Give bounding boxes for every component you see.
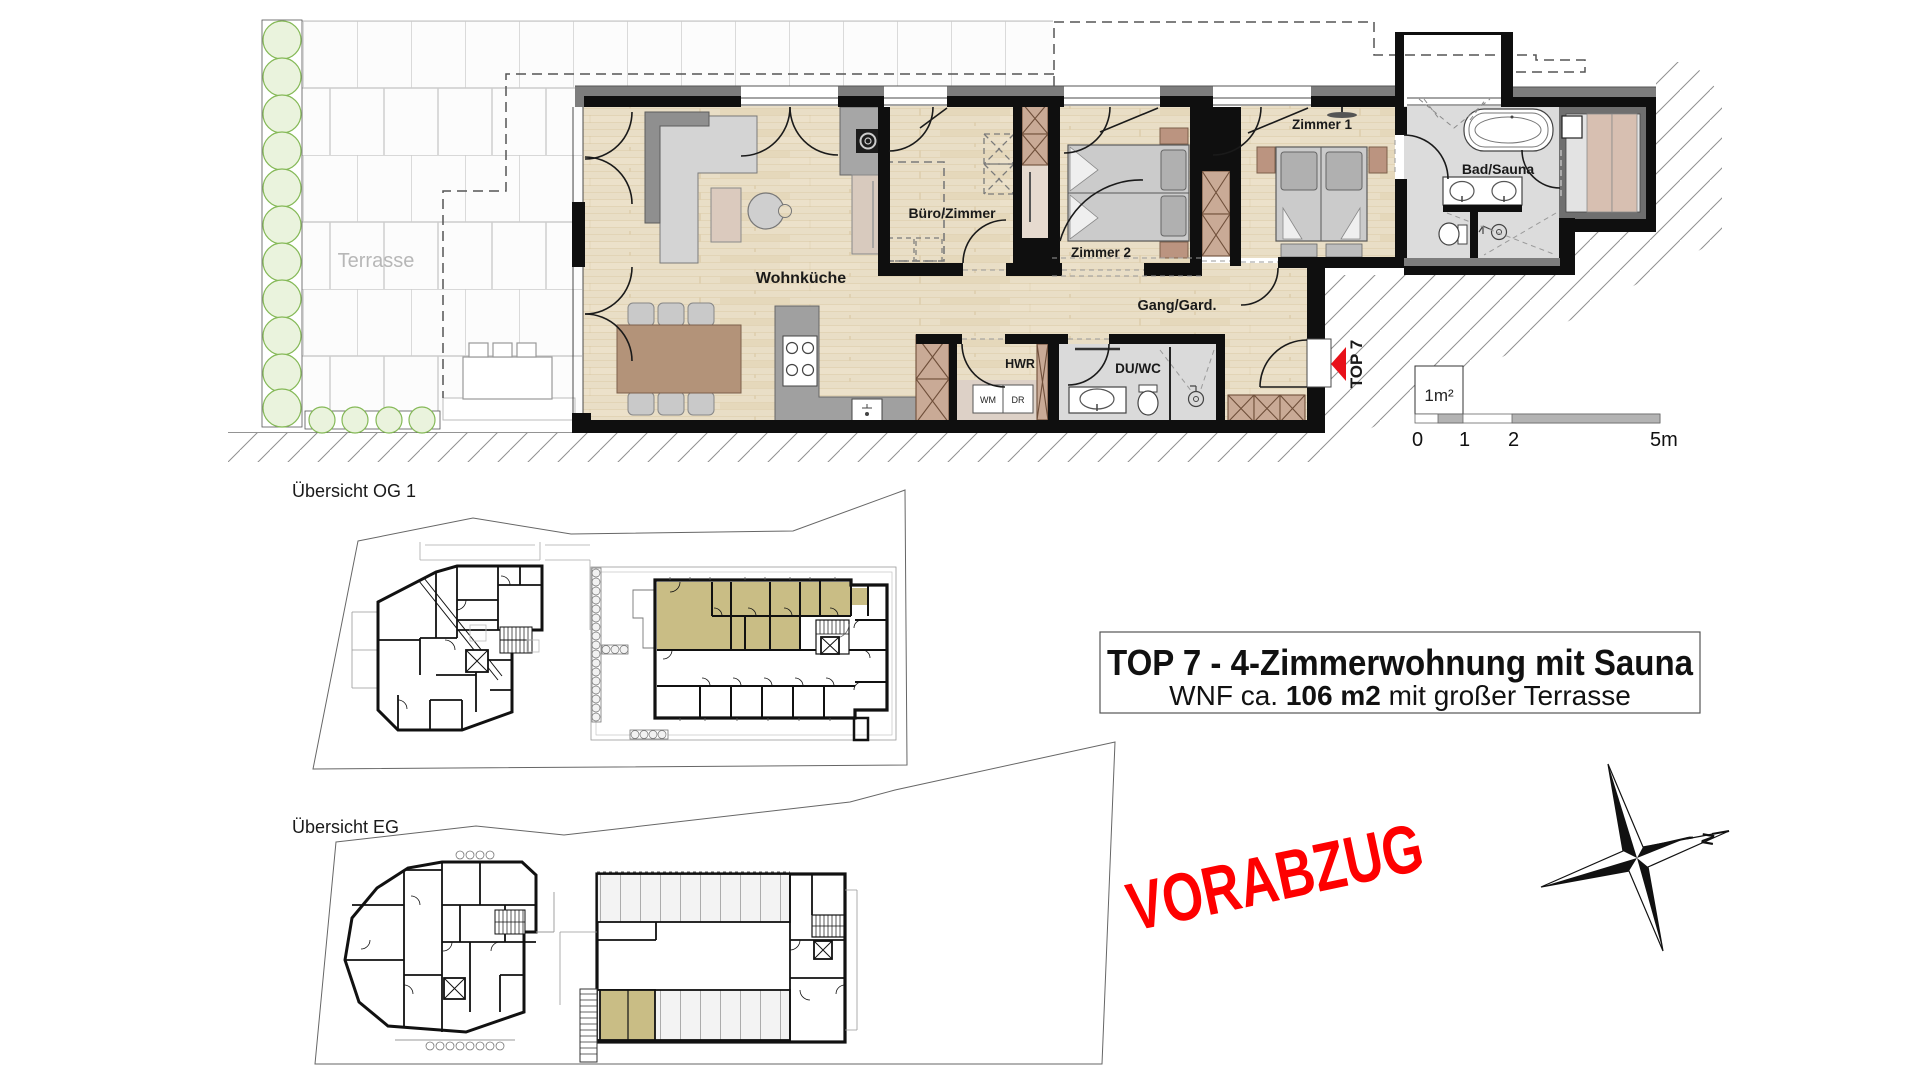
svg-text:DU/WC: DU/WC <box>1115 361 1161 376</box>
svg-text:WNF ca. 106 m2 mit großer Terr: WNF ca. 106 m2 mit großer Terrasse <box>1169 680 1631 711</box>
svg-text:Übersicht EG: Übersicht EG <box>292 817 399 837</box>
svg-text:2: 2 <box>1508 429 1519 451</box>
svg-text:Wohnküche: Wohnküche <box>756 270 846 287</box>
svg-text:Zimmer 2: Zimmer 2 <box>1071 245 1131 260</box>
svg-text:Terrasse: Terrasse <box>338 250 415 272</box>
svg-text:TOP 7: TOP 7 <box>1347 340 1366 389</box>
svg-text:HWR: HWR <box>1005 357 1035 371</box>
svg-text:DR: DR <box>1012 395 1025 405</box>
svg-text:Übersicht OG 1: Übersicht OG 1 <box>292 481 416 501</box>
svg-text:Bad/Sauna: Bad/Sauna <box>1462 161 1535 177</box>
svg-text:5m: 5m <box>1650 429 1678 451</box>
svg-text:Gang/Gard.: Gang/Gard. <box>1138 298 1217 314</box>
svg-text:TOP 7 - 4-Zimmerwohnung mit Sa: TOP 7 - 4-Zimmerwohnung mit Sauna <box>1107 642 1694 683</box>
svg-text:Zimmer 1: Zimmer 1 <box>1292 117 1353 132</box>
svg-text:0: 0 <box>1412 429 1423 451</box>
svg-text:1m²: 1m² <box>1424 386 1454 405</box>
svg-text:1: 1 <box>1459 429 1470 451</box>
svg-text:Büro/Zimmer: Büro/Zimmer <box>908 205 996 221</box>
svg-text:WM: WM <box>980 395 996 405</box>
